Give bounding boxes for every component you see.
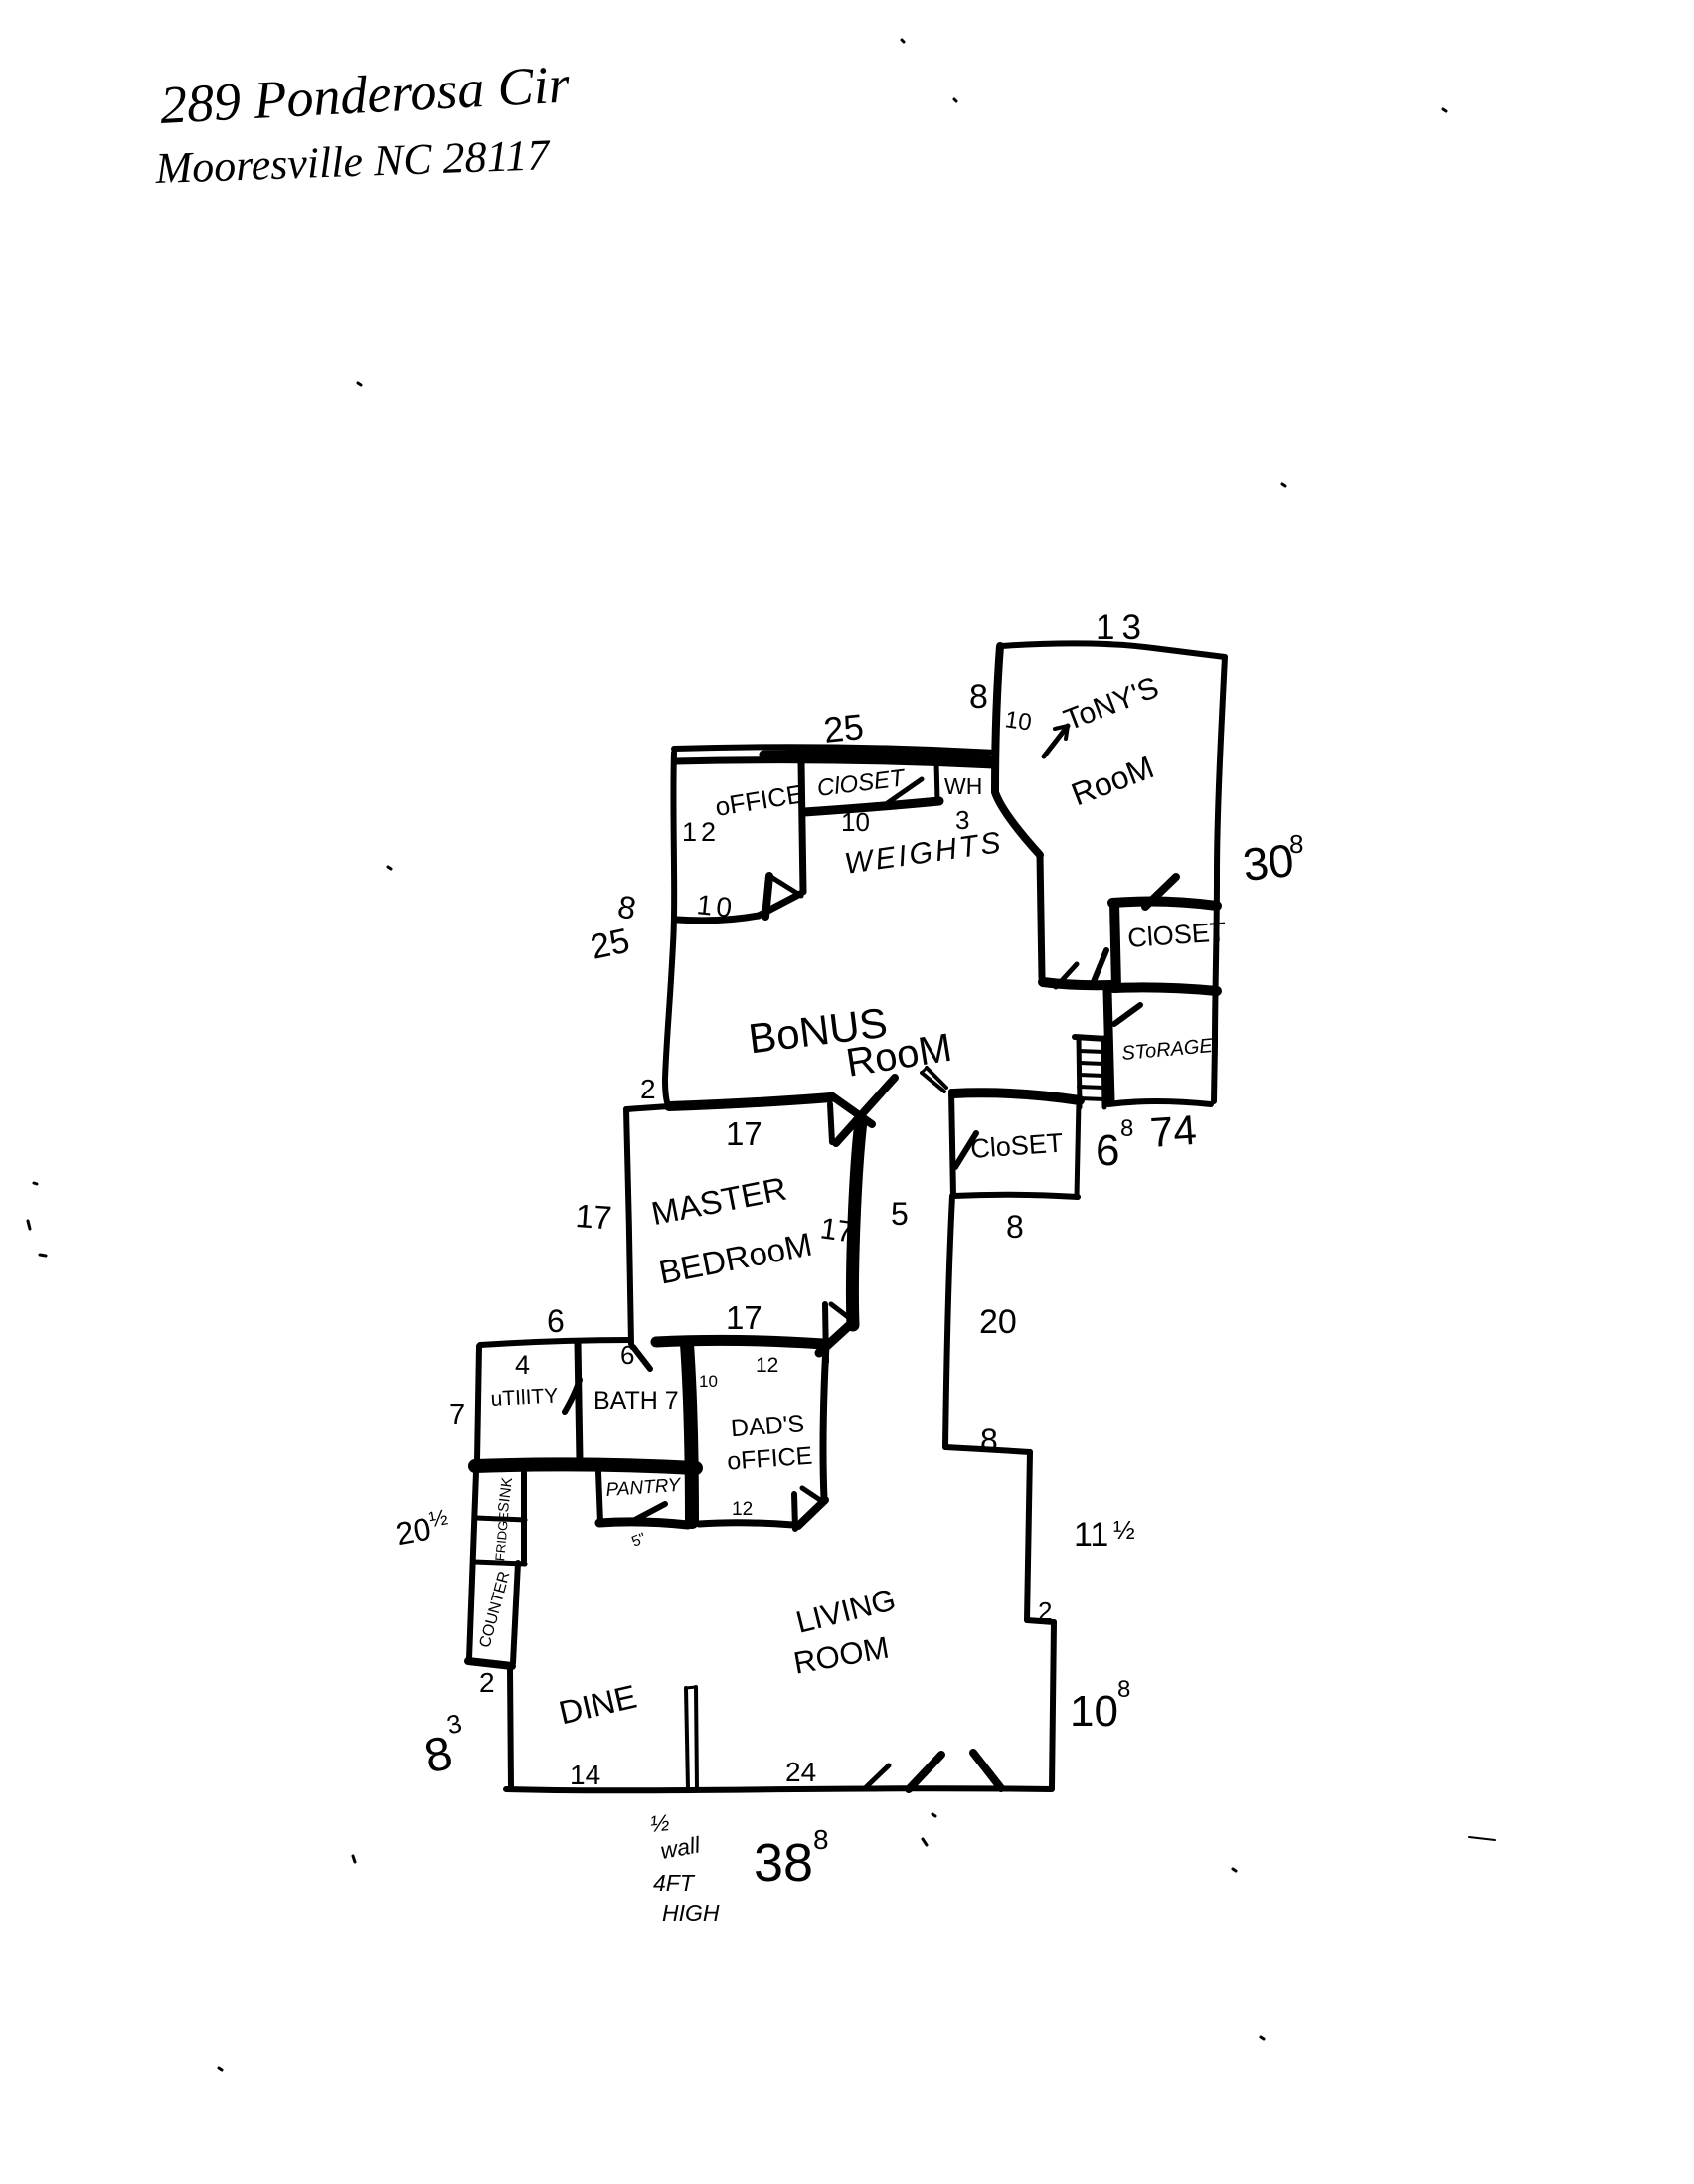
svg-text:12: 12 [756,1354,778,1377]
svg-text:½: ½ [1113,1515,1135,1545]
svg-text:4: 4 [515,1350,530,1380]
svg-text:30: 30 [1241,834,1296,891]
svg-text:14: 14 [570,1760,600,1790]
svg-text:10: 10 [695,889,737,924]
svg-text:24: 24 [785,1757,816,1787]
svg-text:HIGH: HIGH [662,1900,720,1926]
svg-text:½: ½ [649,1809,671,1837]
svg-text:10: 10 [1003,706,1033,736]
svg-text:uTIlITY: uTIlITY [490,1384,559,1411]
svg-text:8: 8 [980,1423,998,1458]
svg-text:25: 25 [822,706,866,751]
svg-text:25: 25 [588,922,633,967]
svg-text:DAD'S: DAD'S [730,1410,805,1442]
svg-text:6: 6 [1096,1126,1119,1175]
svg-text:13: 13 [1096,608,1148,647]
svg-text:20: 20 [979,1303,1017,1341]
svg-text:17: 17 [726,1115,762,1152]
svg-text:2: 2 [479,1667,495,1698]
svg-text:17: 17 [726,1299,762,1336]
svg-text:74: 74 [1148,1106,1198,1156]
svg-text:5: 5 [891,1196,909,1232]
svg-text:8: 8 [1006,1209,1024,1245]
svg-text:8: 8 [1117,1676,1130,1703]
svg-text:8: 8 [813,1824,829,1855]
svg-text:20: 20 [393,1511,433,1553]
svg-text:11: 11 [1074,1516,1108,1554]
svg-text:6: 6 [620,1340,634,1370]
svg-text:7: 7 [449,1399,465,1430]
svg-text:8: 8 [1289,829,1303,859]
svg-text:BATH 7: BATH 7 [593,1387,679,1415]
svg-text:12: 12 [682,817,720,847]
svg-text:2: 2 [640,1074,656,1104]
svg-text:10: 10 [1070,1687,1118,1736]
svg-text:17: 17 [575,1197,613,1236]
svg-text:8: 8 [969,678,988,716]
svg-text:4FT: 4FT [653,1870,696,1896]
svg-text:38: 38 [754,1833,813,1893]
svg-text:6: 6 [547,1303,565,1339]
svg-text:10: 10 [699,1372,718,1391]
svg-text:10: 10 [841,807,870,837]
svg-text:8: 8 [1120,1115,1133,1142]
svg-text:12: 12 [732,1499,753,1520]
svg-text:oFFICE: oFFICE [726,1442,813,1476]
svg-text:2: 2 [1038,1596,1052,1626]
svg-text:WH: WH [944,773,982,799]
svg-text:17: 17 [818,1212,856,1249]
